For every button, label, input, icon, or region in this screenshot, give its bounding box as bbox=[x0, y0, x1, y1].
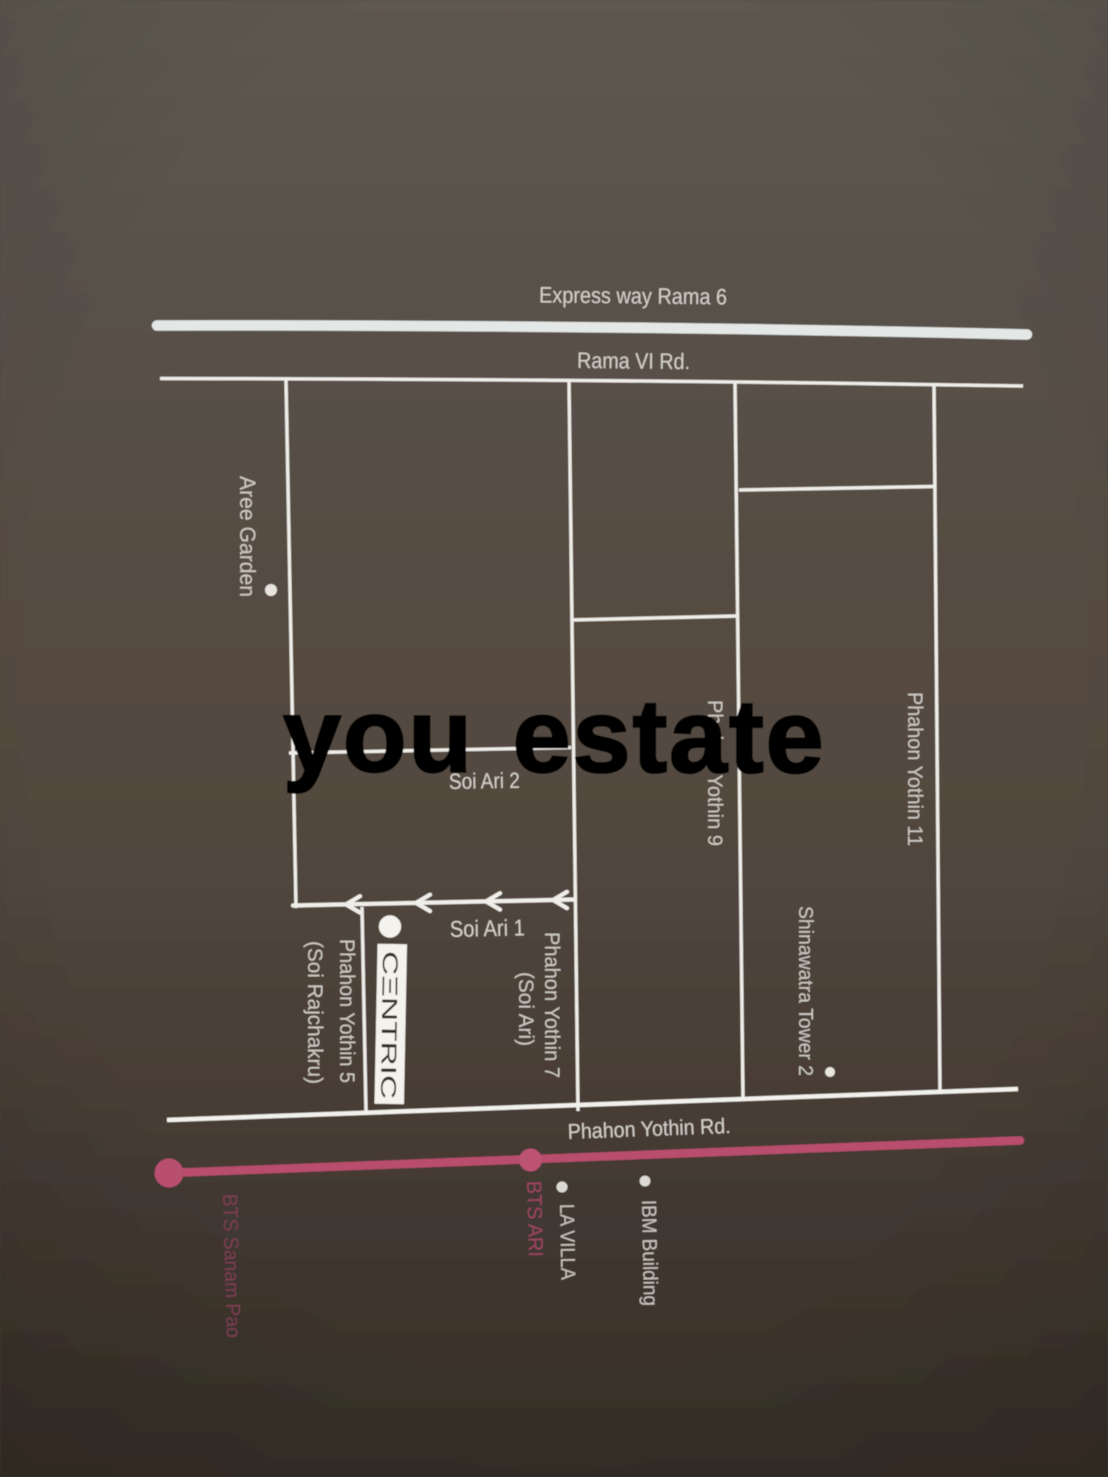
svg-text:Express way Rama 6: Express way Rama 6 bbox=[539, 283, 727, 310]
svg-text:(Soi Rajchakru): (Soi Rajchakru) bbox=[303, 941, 326, 1084]
svg-text:Phahon Yothin 5: Phahon Yothin 5 bbox=[335, 939, 358, 1083]
svg-text:Phahon Yothin 7: Phahon Yothin 7 bbox=[540, 932, 563, 1078]
svg-text:IBM Building: IBM Building bbox=[637, 1200, 662, 1306]
svg-text:BTS Sanam Pao: BTS Sanam Pao bbox=[218, 1194, 245, 1339]
svg-text:(Soi Ari): (Soi Ari) bbox=[514, 972, 537, 1046]
svg-text:you estate: you estate bbox=[283, 678, 826, 795]
svg-text:Shinawatra Tower 2: Shinawatra Tower 2 bbox=[794, 906, 817, 1076]
svg-text:CΞNTRIC: CΞNTRIC bbox=[376, 951, 402, 1099]
svg-text:BTS ARI: BTS ARI bbox=[522, 1181, 547, 1258]
svg-text:Rama VI Rd.: Rama VI Rd. bbox=[577, 348, 690, 374]
svg-text:Soi Ari 1: Soi Ari 1 bbox=[450, 914, 526, 942]
svg-text:Aree Garden: Aree Garden bbox=[235, 476, 260, 597]
svg-text:Phahon Yothin 11: Phahon Yothin 11 bbox=[903, 692, 926, 846]
svg-text:LA VILLA: LA VILLA bbox=[555, 1204, 579, 1281]
